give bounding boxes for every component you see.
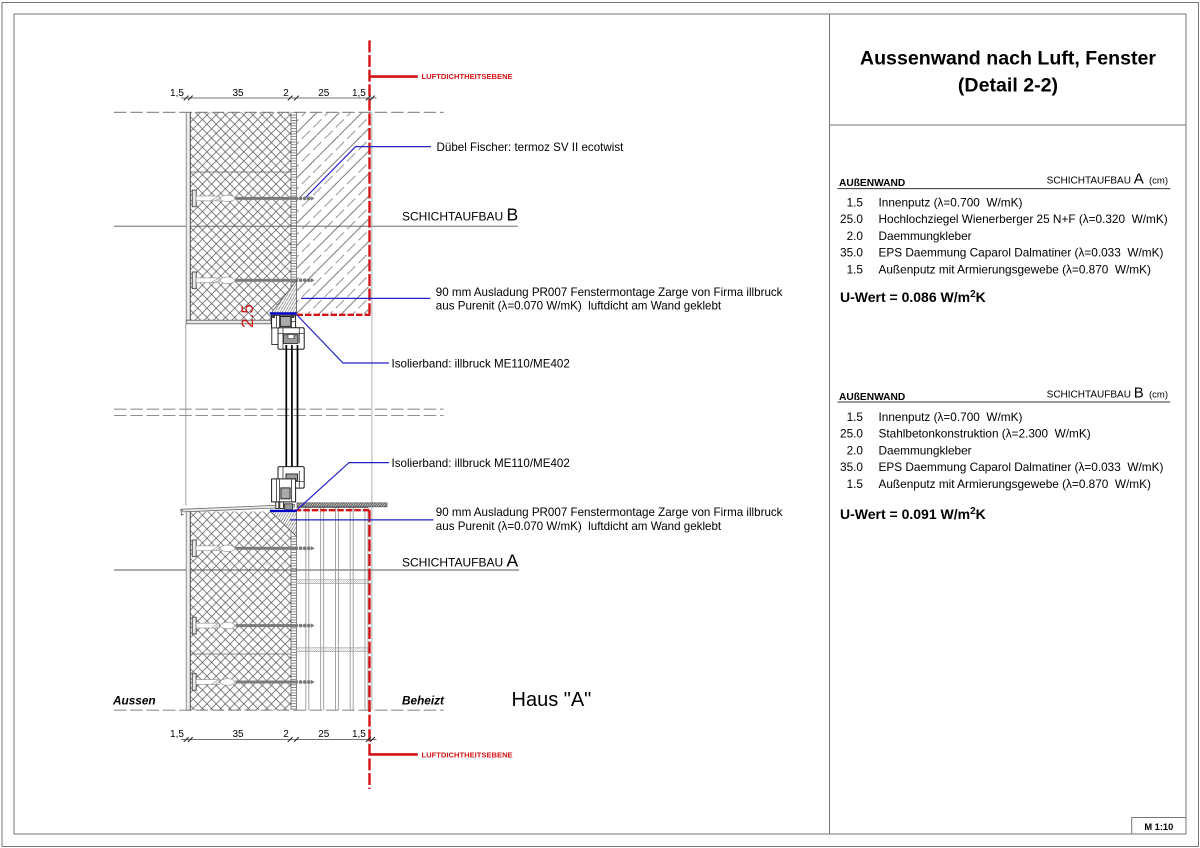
svg-text:1.5: 1.5 (847, 196, 864, 210)
svg-text:Isolierband: illbruck ME110/ME: Isolierband: illbruck ME110/ME402 (392, 457, 570, 470)
svg-text:(Detail 2-2): (Detail 2-2) (958, 75, 1058, 97)
svg-text:M 1:10: M 1:10 (1144, 822, 1173, 832)
svg-text:2.0: 2.0 (847, 229, 864, 243)
svg-text:SCHICHTAUFBAU B (cm): SCHICHTAUFBAU B (cm) (1047, 385, 1168, 402)
svg-text:2.0: 2.0 (847, 443, 864, 457)
svg-text:Hochlochziegel Wienerberger 25: Hochlochziegel Wienerberger 25 N+F (λ=0.… (879, 212, 1168, 226)
svg-text:LUFTDICHTHEITSEBENE: LUFTDICHTHEITSEBENE (422, 750, 513, 759)
svg-text:Daemmungkleber: Daemmungkleber (879, 229, 972, 243)
svg-text:AUßENWAND: AUßENWAND (839, 392, 905, 403)
svg-text:SCHICHTAUFBAU A: SCHICHTAUFBAU A (402, 551, 518, 571)
svg-text:1,5: 1,5 (170, 729, 184, 740)
svg-text:2: 2 (283, 88, 289, 99)
svg-text:SCHICHTAUFBAU A (cm): SCHICHTAUFBAU A (cm) (1047, 171, 1168, 188)
svg-text:1.5: 1.5 (847, 477, 864, 491)
svg-text:SCHICHTAUFBAU B: SCHICHTAUFBAU B (402, 205, 518, 225)
svg-text:aus Purenit (λ=0.070 W/mK) lu: aus Purenit (λ=0.070 W/mK) luftdicht am … (436, 300, 722, 313)
svg-text:35.0: 35.0 (840, 246, 863, 260)
svg-text:Innenputz (λ=0.700 W/mK): Innenputz (λ=0.700 W/mK) (879, 196, 1023, 210)
svg-text:90 mm Ausladung PR007 Fensterm: 90 mm Ausladung PR007 Fenstermontage Zar… (436, 506, 783, 519)
svg-text:EPS Daemmung Caparol Dalmatine: EPS Daemmung Caparol Dalmatiner (λ=0.033… (879, 460, 1164, 474)
svg-text:25.0: 25.0 (840, 212, 863, 226)
svg-text:Stahlbetonkonstruktion (λ=2.30: Stahlbetonkonstruktion (λ=2.300 W/mK) (879, 427, 1091, 441)
svg-text:25: 25 (318, 88, 330, 99)
svg-text:1.5: 1.5 (847, 262, 864, 276)
svg-text:Beheizt: Beheizt (402, 694, 445, 708)
svg-text:2.5: 2.5 (238, 304, 257, 328)
svg-text:1,5: 1,5 (352, 729, 366, 740)
svg-text:Aussen: Aussen (112, 694, 156, 708)
svg-text:35: 35 (232, 729, 244, 740)
svg-text:AUßENWAND: AUßENWAND (839, 178, 905, 189)
svg-text:Außenputz mit Armierungsgewebe: Außenputz mit Armierungsgewebe (λ=0.870 … (879, 477, 1152, 491)
svg-text:Innenputz (λ=0.700 W/mK): Innenputz (λ=0.700 W/mK) (879, 410, 1023, 424)
svg-text:1,5: 1,5 (170, 88, 184, 99)
svg-text:aus Purenit (λ=0.070 W/mK) lu: aus Purenit (λ=0.070 W/mK) luftdicht am … (436, 520, 722, 533)
svg-text:Isolierband: illbruck ME110/ME: Isolierband: illbruck ME110/ME402 (392, 357, 570, 370)
svg-text:35: 35 (232, 88, 244, 99)
svg-text:LUFTDICHTHEITSEBENE: LUFTDICHTHEITSEBENE (422, 72, 513, 81)
svg-text:25.0: 25.0 (840, 427, 863, 441)
svg-text:Dübel Fischer: termoz SV II ec: Dübel Fischer: termoz SV II ecotwist (437, 141, 625, 154)
svg-text:1.5: 1.5 (847, 410, 864, 424)
svg-text:U-Wert = 0.091 W/m2K: U-Wert = 0.091 W/m2K (840, 506, 986, 522)
svg-text:1,5: 1,5 (352, 88, 366, 99)
svg-text:EPS Daemmung Caparol Dalmatine: EPS Daemmung Caparol Dalmatiner (λ=0.033… (879, 246, 1164, 260)
svg-text:25: 25 (318, 729, 330, 740)
svg-text:Außenputz mit Armierungsgewebe: Außenputz mit Armierungsgewebe (λ=0.870 … (879, 262, 1152, 276)
svg-text:U-Wert = 0.086 W/m2K: U-Wert = 0.086 W/m2K (840, 289, 986, 305)
svg-text:2: 2 (283, 729, 289, 740)
svg-text:35.0: 35.0 (840, 460, 863, 474)
svg-text:90 mm Ausladung PR007 Fensterm: 90 mm Ausladung PR007 Fenstermontage Zar… (436, 286, 783, 299)
svg-text:Daemmungkleber: Daemmungkleber (879, 443, 972, 457)
svg-text:Aussenwand nach Luft, Fenster: Aussenwand nach Luft, Fenster (860, 48, 1157, 70)
svg-text:Haus "A": Haus "A" (512, 689, 592, 711)
